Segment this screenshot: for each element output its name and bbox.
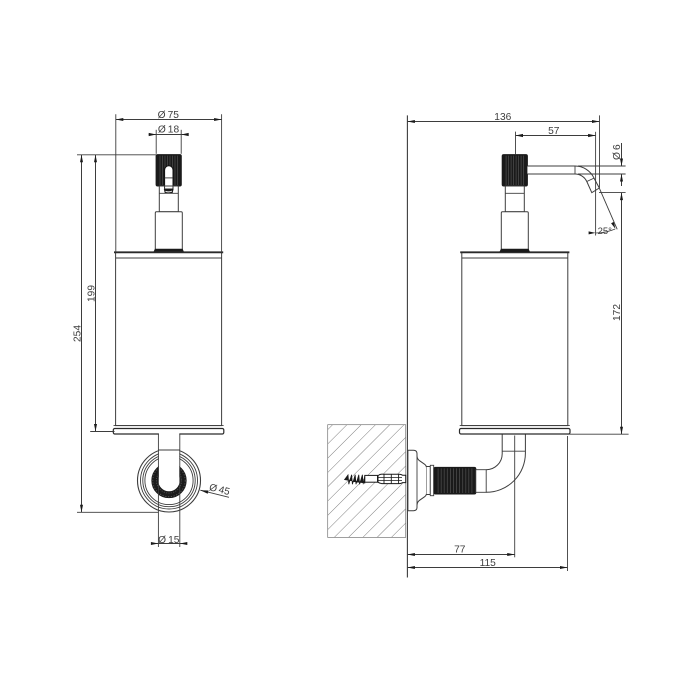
- svg-text:Ø 18: Ø 18: [158, 124, 180, 135]
- svg-text:172: 172: [612, 304, 623, 321]
- svg-text:77: 77: [454, 545, 466, 556]
- svg-text:254: 254: [72, 325, 83, 342]
- svg-text:199: 199: [86, 285, 97, 302]
- svg-text:115: 115: [480, 558, 497, 569]
- svg-text:25°: 25°: [598, 226, 613, 237]
- svg-text:Ø 6: Ø 6: [612, 144, 623, 160]
- svg-text:57: 57: [548, 126, 560, 137]
- svg-text:Ø 15: Ø 15: [158, 535, 180, 546]
- svg-text:136: 136: [494, 112, 511, 123]
- svg-text:Ø 75: Ø 75: [158, 110, 180, 121]
